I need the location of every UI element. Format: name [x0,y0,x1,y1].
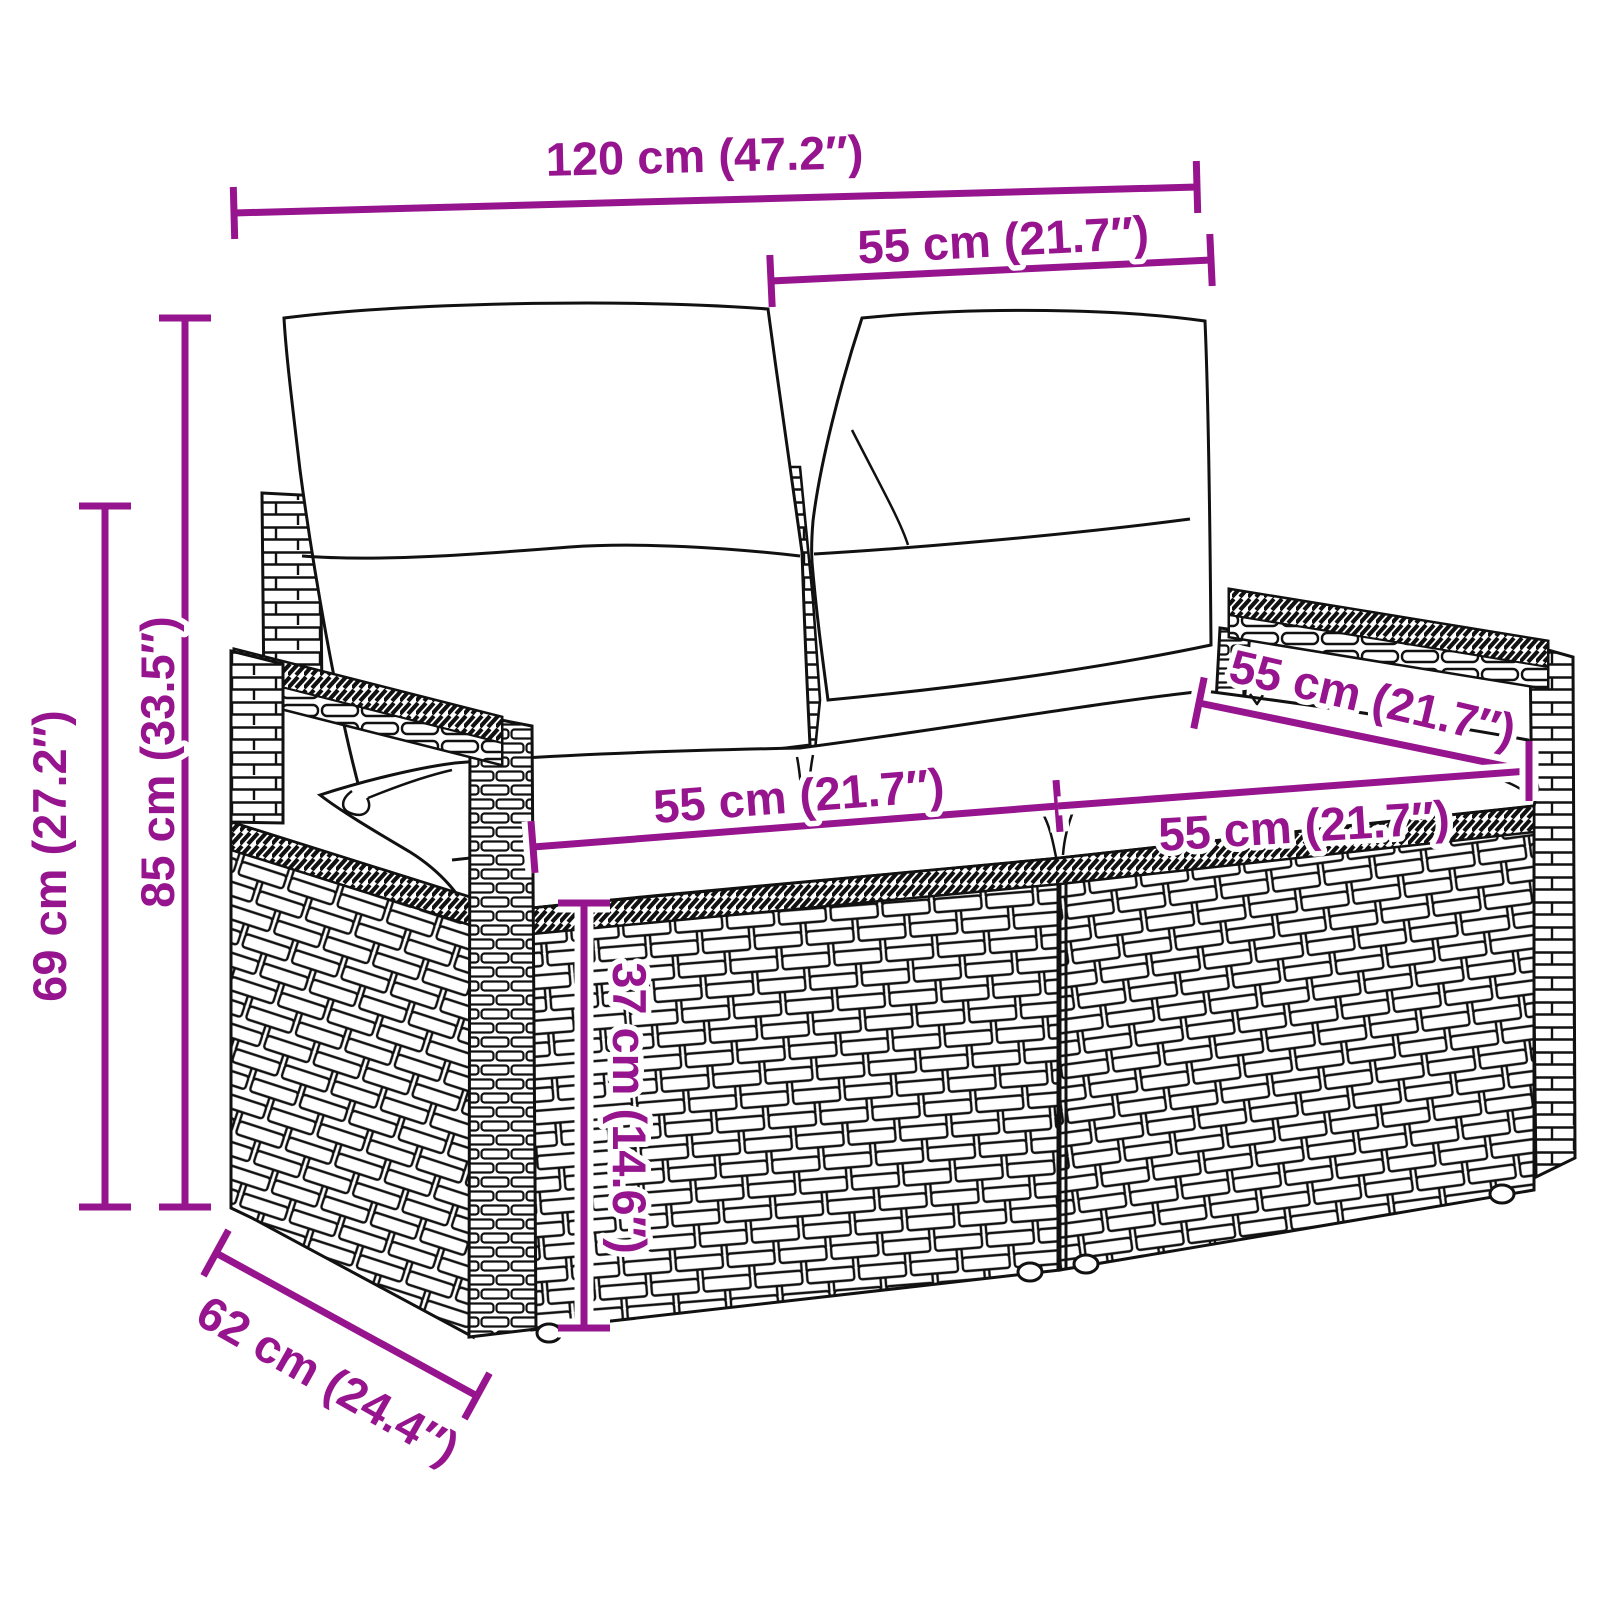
svg-text:69 cm (27.2″): 69 cm (27.2″) [23,710,76,1002]
svg-text:37 cm (14.6″): 37 cm (14.6″) [603,962,656,1254]
svg-text:120 cm (47.2″): 120 cm (47.2″) [545,125,864,186]
svg-text:85 cm (33.5″): 85 cm (33.5″) [131,616,184,908]
